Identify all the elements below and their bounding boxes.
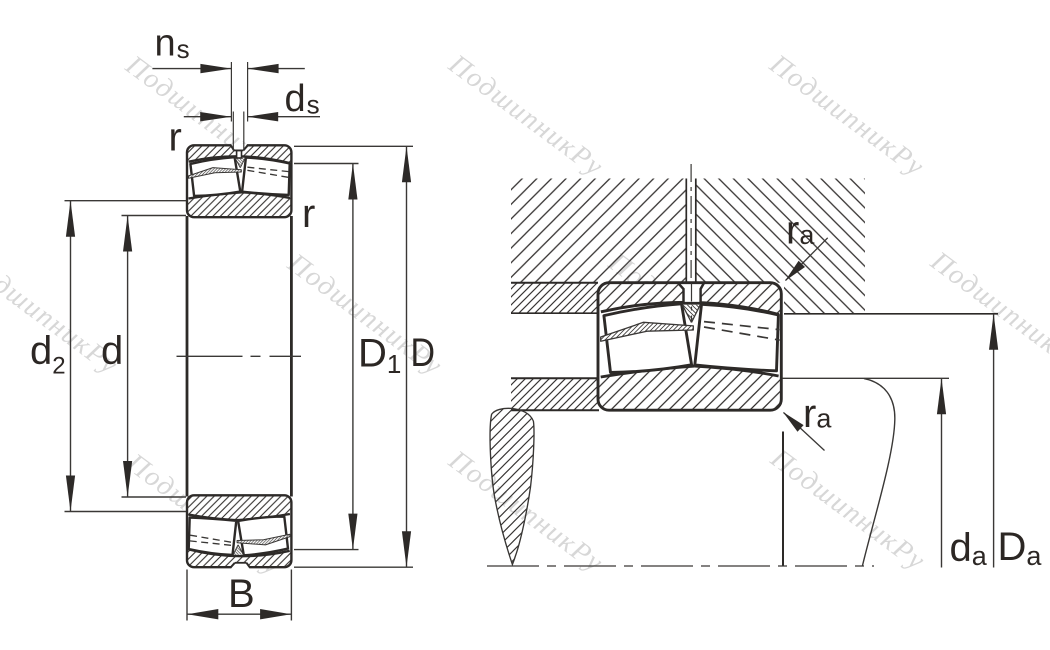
svg-text:D: D <box>411 331 436 375</box>
svg-text:r: r <box>302 192 315 236</box>
svg-text:r: r <box>169 116 182 160</box>
svg-text:B: B <box>228 572 255 616</box>
svg-text:d: d <box>101 329 123 373</box>
